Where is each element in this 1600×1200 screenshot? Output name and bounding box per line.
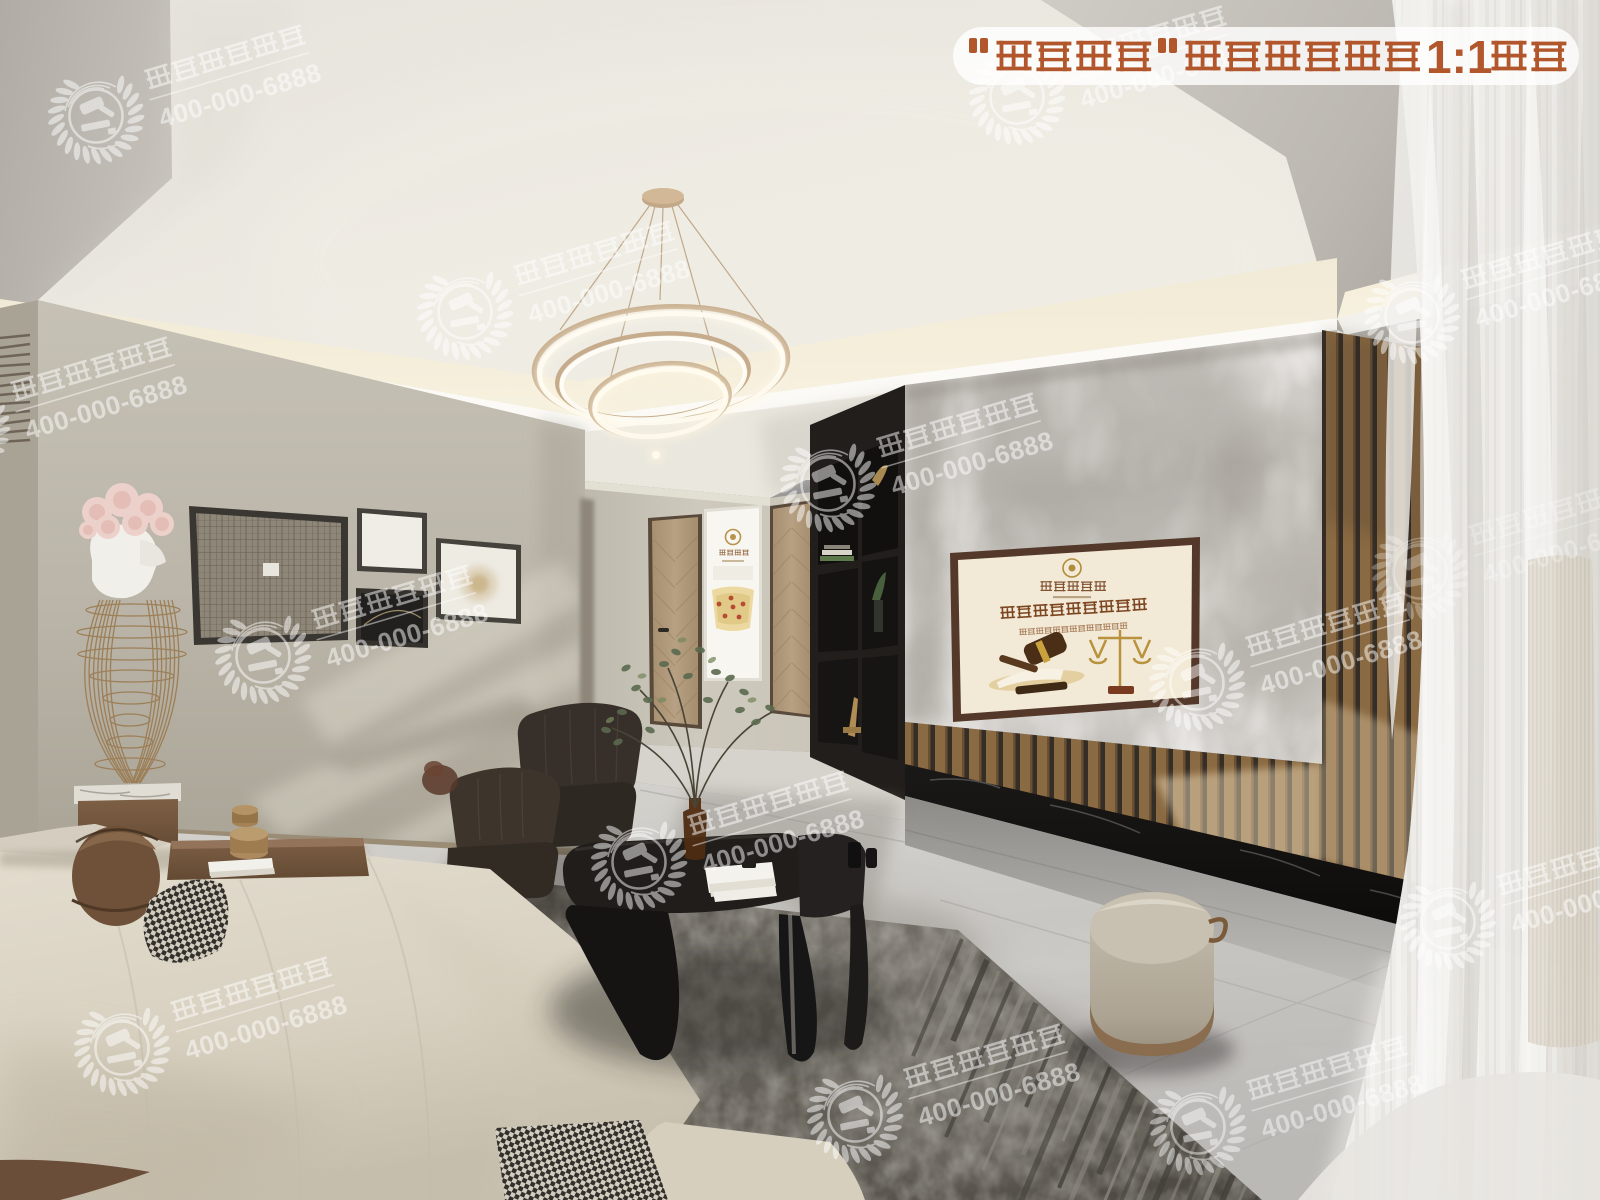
svg-text:1:1: 1:1 xyxy=(1426,31,1492,83)
